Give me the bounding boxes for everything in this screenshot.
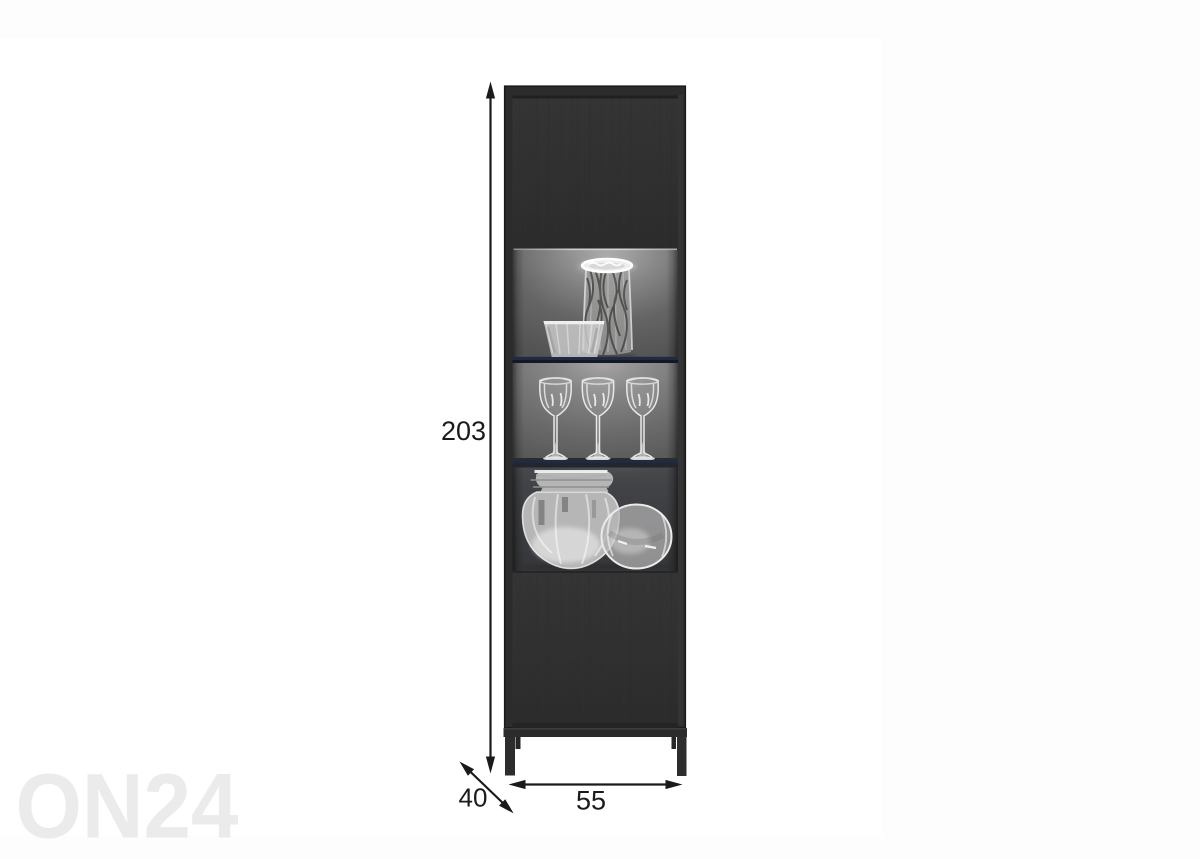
svg-text:ON24: ON24 — [16, 756, 239, 858]
svg-text:55: 55 — [576, 786, 606, 816]
svg-text:203: 203 — [441, 416, 486, 446]
svg-text:40: 40 — [459, 783, 488, 813]
